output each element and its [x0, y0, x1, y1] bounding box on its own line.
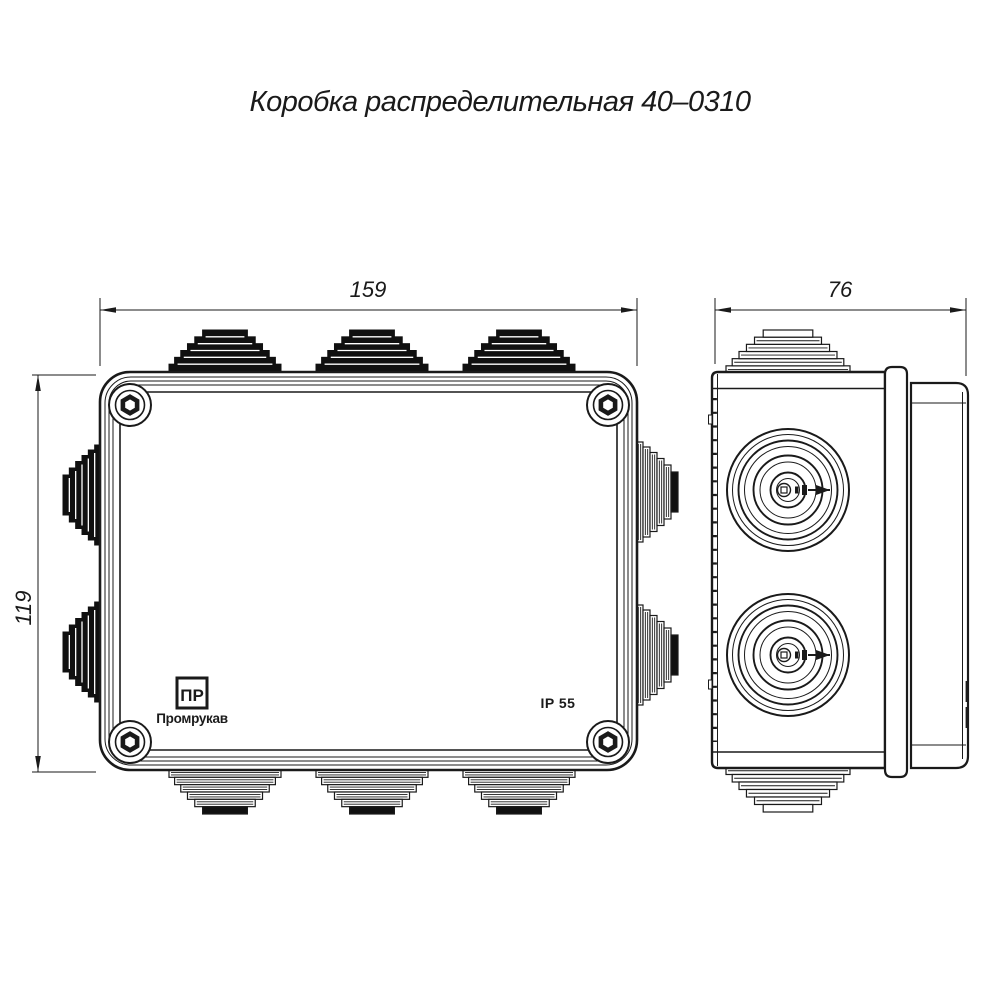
cable-gland-icon: [316, 330, 428, 371]
screw-icon: [109, 384, 151, 426]
lid-flange: [885, 367, 907, 777]
cable-gland-icon: [726, 767, 850, 812]
arrowhead-icon: [950, 307, 966, 313]
dimension-height: 119: [11, 375, 96, 772]
screw-icon: [109, 721, 151, 763]
dimension-height-label: 119: [11, 590, 36, 625]
arrowhead-icon: [715, 307, 731, 313]
cable-gland-icon: [463, 770, 575, 814]
arrowhead-icon: [35, 756, 41, 772]
latch-bump: [709, 415, 713, 424]
hex-socket-icon: [601, 397, 615, 413]
cable-gland-icon: [63, 445, 101, 545]
latch-bump: [709, 680, 713, 689]
box-body: [911, 383, 968, 768]
hex-socket-icon: [123, 397, 137, 413]
cable-gland-icon: [316, 770, 428, 814]
cable-gland-icon: [463, 330, 575, 371]
arrowhead-icon: [621, 307, 637, 313]
mount-tab: [966, 681, 969, 702]
arrowhead-icon: [35, 375, 41, 391]
screw-icon: [587, 384, 629, 426]
side-view: [709, 367, 970, 777]
cable-gland-icon: [726, 330, 850, 373]
cable-gland-icon: [169, 330, 281, 371]
cable-gland-icon: [636, 605, 678, 705]
side-face: [712, 372, 885, 768]
hex-socket-icon: [601, 734, 615, 750]
ip-rating-label: IP 55: [541, 695, 576, 711]
drawing-sheet: 159 76 119: [0, 0, 1000, 1000]
mount-tab: [966, 707, 969, 728]
cable-gland-icon: [636, 442, 678, 542]
hex-socket-icon: [123, 734, 137, 750]
brand-name: Промрукав: [156, 711, 227, 726]
screw-icon: [587, 721, 629, 763]
page-title: Коробка распределительная 40–0310: [0, 86, 1000, 119]
dimension-width-label: 159: [350, 277, 387, 302]
cable-gland-icon: [63, 602, 101, 702]
brand-logo-text: ПР: [180, 686, 204, 705]
front-view: ПР Промрукав IP 55: [100, 372, 637, 770]
technical-drawing: Коробка распределительная 40–0310 159 76: [0, 0, 1000, 1000]
dimension-depth-label: 76: [828, 277, 853, 302]
cable-gland-icon: [169, 770, 281, 814]
arrowhead-icon: [100, 307, 116, 313]
